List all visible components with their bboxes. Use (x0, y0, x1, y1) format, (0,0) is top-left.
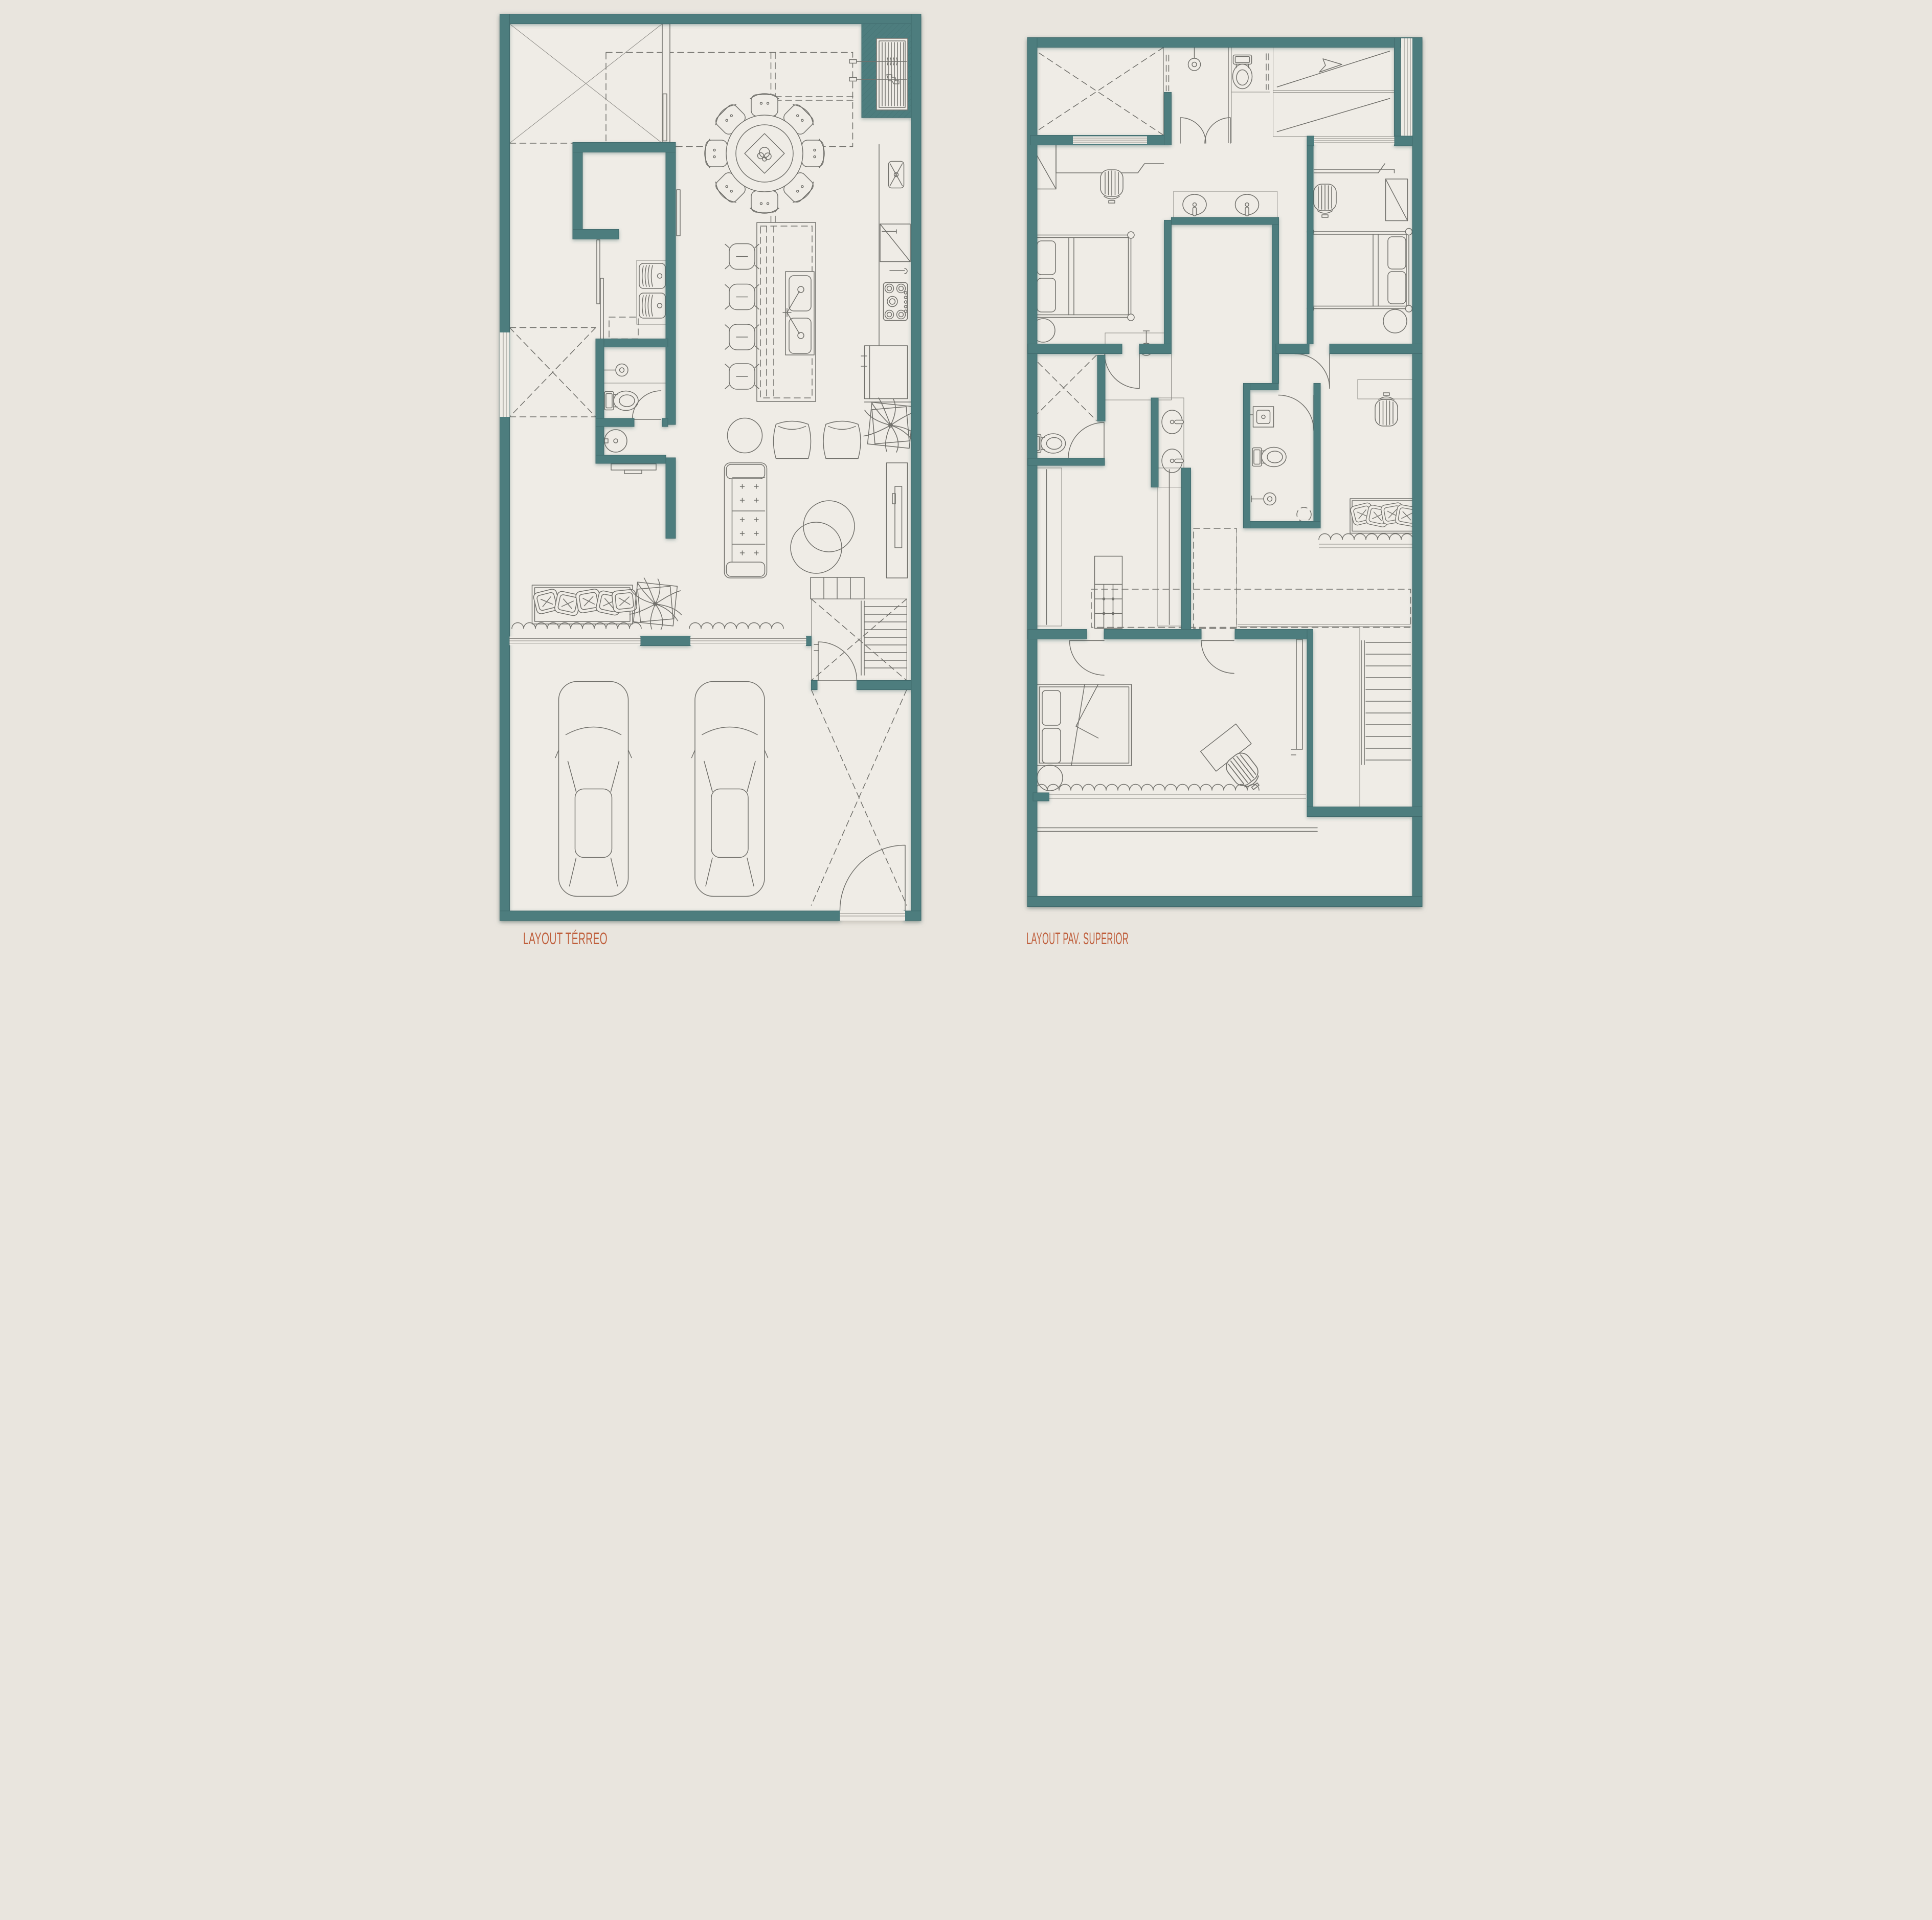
bench-pillows (1350, 499, 1419, 533)
stool (725, 244, 759, 270)
tv-panel (886, 463, 907, 578)
toilet (1252, 448, 1286, 467)
toilet (604, 391, 638, 411)
sliding-panel (597, 240, 600, 304)
laundry-tub (639, 293, 665, 318)
stool (725, 364, 759, 389)
pav-floor (1027, 38, 1422, 907)
tall-door-leaf (1296, 639, 1302, 749)
sofa (724, 463, 767, 578)
terreo-label: LAYOUT TÉRREO (523, 929, 608, 948)
bed-1 (1028, 232, 1134, 321)
laundry-tub (639, 263, 665, 288)
pav-superior-label: LAYOUT PAV. SUPERIOR (1026, 929, 1129, 948)
wc-toilet (1232, 55, 1252, 89)
floorplans-canvas: LAYOUT TÉRREO LAYOUT PAV. SUPERIOR (483, 0, 1449, 960)
bed-2 (1307, 229, 1412, 312)
square-basin (1253, 407, 1273, 427)
sliding-panel (600, 278, 603, 342)
terreo-plan (483, 0, 921, 921)
cooktop (883, 283, 907, 321)
console (611, 464, 656, 470)
master-bed (1037, 684, 1131, 766)
refrigerator (861, 346, 911, 402)
stool (725, 284, 759, 310)
floorplan-sheet: LAYOUT TÉRREO LAYOUT PAV. SUPERIOR (483, 0, 1449, 960)
pav-superior-plan (1027, 38, 1422, 907)
stool (725, 324, 759, 350)
